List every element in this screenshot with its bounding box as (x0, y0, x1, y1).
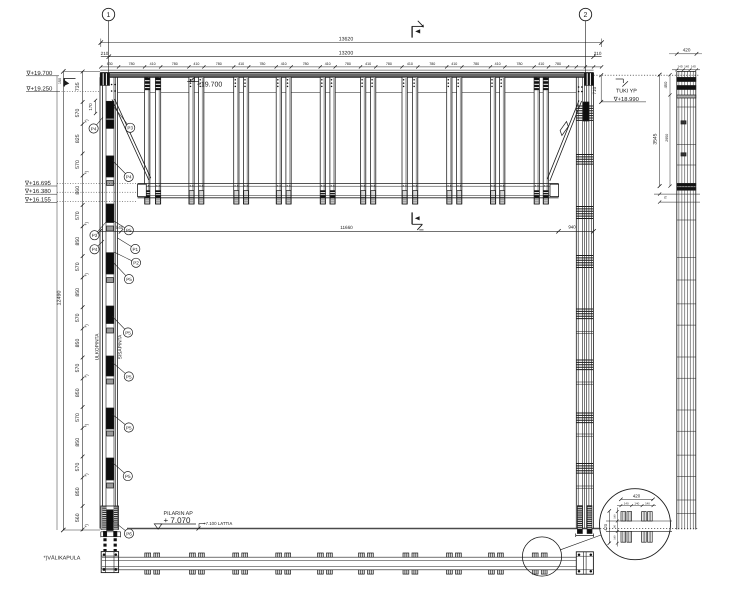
svg-text:570: 570 (75, 364, 81, 373)
svg-text:150: 150 (58, 78, 62, 84)
svg-text:570: 570 (75, 109, 81, 118)
svg-text:780: 780 (259, 62, 265, 66)
svg-text:P5: P5 (125, 474, 131, 479)
svg-text:140: 140 (624, 501, 629, 505)
svg-text:TUKI YP: TUKI YP (616, 89, 637, 95)
svg-text:+19.700: +19.700 (197, 81, 223, 88)
svg-text:+7.100 LATTIA: +7.100 LATTIA (203, 521, 232, 526)
svg-text:140: 140 (645, 501, 650, 505)
svg-text:75: 75 (664, 196, 668, 200)
svg-text:780: 780 (517, 62, 523, 66)
svg-text:13620: 13620 (339, 37, 354, 43)
svg-text:P5: P5 (126, 228, 132, 233)
svg-text:*): *) (84, 119, 89, 123)
svg-text:570: 570 (75, 413, 81, 422)
svg-text:*): *) (84, 524, 89, 528)
svg-text:11660: 11660 (340, 225, 353, 230)
svg-text:420: 420 (603, 523, 608, 530)
svg-text:P2: P2 (133, 261, 139, 266)
svg-text:570: 570 (75, 211, 81, 220)
svg-text:780: 780 (216, 62, 222, 66)
svg-text:630: 630 (107, 62, 113, 66)
svg-text:410: 410 (325, 62, 331, 66)
svg-text:850: 850 (75, 288, 81, 297)
svg-text:850: 850 (75, 388, 81, 397)
svg-text:SISÄPINTA: SISÄPINTA (117, 334, 124, 360)
svg-text:420: 420 (633, 493, 641, 498)
svg-text:210: 210 (594, 51, 602, 56)
svg-text:850: 850 (75, 339, 81, 348)
svg-text:P5: P5 (126, 374, 132, 379)
svg-text:P4: P4 (91, 126, 97, 131)
svg-text:P6: P6 (126, 531, 132, 536)
svg-text:140: 140 (684, 65, 689, 69)
svg-text:1: 1 (107, 12, 111, 19)
svg-text:+ 7.070: + 7.070 (164, 516, 191, 525)
svg-text:140: 140 (614, 535, 617, 540)
svg-text:ULKOPINTA: ULKOPINTA (94, 333, 100, 361)
svg-text:170: 170 (88, 103, 93, 111)
svg-text:735: 735 (75, 82, 81, 91)
svg-text:850: 850 (75, 438, 81, 447)
svg-text:140: 140 (691, 65, 696, 69)
svg-text:*): *) (84, 273, 89, 277)
svg-text:825: 825 (75, 134, 81, 143)
svg-text:450: 450 (663, 81, 668, 88)
svg-text:*): *) (84, 374, 89, 378)
svg-text:780: 780 (303, 62, 309, 66)
svg-text:560: 560 (75, 513, 81, 522)
svg-text:410: 410 (451, 62, 457, 66)
svg-text:140: 140 (634, 501, 639, 505)
svg-text:*)VÄLIKAPULA: *)VÄLIKAPULA (44, 555, 81, 562)
svg-text:410: 410 (495, 62, 501, 66)
svg-text:410: 410 (407, 62, 413, 66)
svg-text:410: 410 (150, 62, 156, 66)
svg-text:940: 940 (568, 225, 576, 230)
svg-text:420: 420 (683, 48, 691, 53)
svg-text:410: 410 (193, 62, 199, 66)
svg-text:3545: 3545 (652, 133, 658, 144)
svg-text:570: 570 (75, 160, 81, 169)
svg-text:P5: P5 (126, 277, 132, 282)
svg-text:*): *) (84, 423, 89, 427)
svg-text:*): *) (84, 473, 89, 477)
svg-text:570: 570 (75, 313, 81, 322)
svg-text:P4: P4 (126, 175, 132, 180)
svg-text:570: 570 (75, 463, 81, 472)
svg-text:*): *) (84, 170, 89, 174)
svg-text:410: 410 (238, 62, 244, 66)
svg-text:2950: 2950 (665, 134, 669, 142)
svg-text:780: 780 (172, 62, 178, 66)
svg-text:2: 2 (584, 12, 588, 19)
svg-text:780: 780 (429, 62, 435, 66)
svg-text:780: 780 (473, 62, 479, 66)
svg-text:12490: 12490 (56, 291, 62, 306)
svg-text:*): *) (84, 324, 89, 328)
svg-text:P3: P3 (127, 126, 133, 131)
svg-text:850: 850 (75, 487, 81, 496)
svg-text:*): *) (84, 222, 89, 226)
svg-text:P1: P1 (132, 247, 138, 252)
svg-text:780: 780 (345, 62, 351, 66)
svg-text:P3: P3 (92, 233, 98, 238)
svg-text:570: 570 (75, 262, 81, 271)
svg-text:780: 780 (129, 62, 135, 66)
svg-text:140: 140 (614, 514, 617, 519)
svg-text:P5: P5 (125, 330, 131, 335)
svg-text:410: 410 (365, 62, 371, 66)
svg-text:540: 540 (116, 225, 124, 230)
svg-text:P5: P5 (126, 425, 132, 430)
svg-text:850: 850 (75, 237, 81, 246)
svg-text:710: 710 (592, 86, 597, 94)
svg-text:13200: 13200 (339, 51, 354, 57)
svg-text:860: 860 (75, 186, 81, 195)
svg-text:410: 410 (281, 62, 287, 66)
svg-text:780: 780 (555, 62, 561, 66)
svg-text:140: 140 (677, 65, 682, 69)
svg-text:P4: P4 (92, 247, 98, 252)
svg-text:410: 410 (538, 62, 544, 66)
svg-text:210: 210 (101, 51, 109, 56)
svg-text:780: 780 (386, 62, 392, 66)
